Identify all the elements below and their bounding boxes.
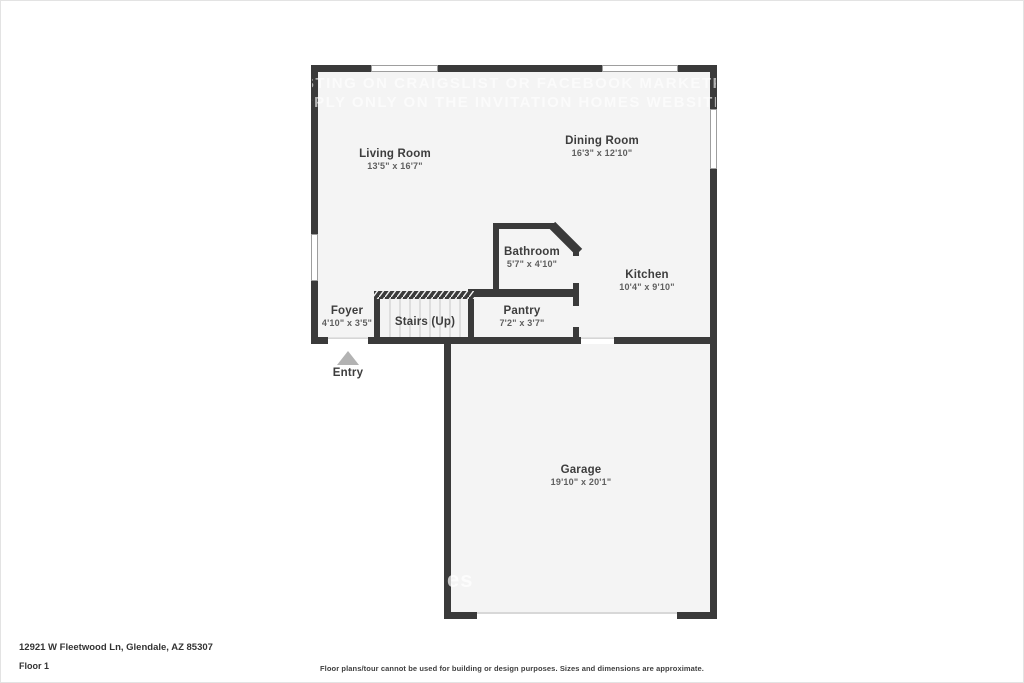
garage-house-threshold-line	[581, 338, 614, 339]
garage-floor	[447, 340, 714, 614]
window-top-left	[372, 66, 438, 72]
wall-pantry-top	[468, 289, 579, 297]
floorplan-page: STING ON CRAIGSLIST OR FACEBOOK MARKETP …	[0, 0, 1024, 683]
wall-house-left	[311, 65, 318, 344]
wall-garage-bottom-left	[444, 612, 477, 619]
wall-bathroom-left	[493, 223, 499, 297]
wall-garage-left	[444, 337, 451, 619]
window-left	[312, 235, 318, 281]
floorplan-drawing	[1, 1, 1024, 683]
entry-arrow-icon	[337, 351, 359, 365]
disclaimer-text: Floor plans/tour cannot be used for buil…	[1, 664, 1023, 673]
wall-garage-bottom-right	[677, 612, 717, 619]
garage-door-line	[477, 612, 677, 614]
window-right	[711, 110, 717, 169]
window-top-right	[603, 66, 678, 72]
wall-house-bottom	[311, 337, 717, 344]
wall-pantry-right-upper	[573, 297, 579, 306]
entry-threshold-line	[328, 338, 368, 339]
wall-bathroom-top	[493, 223, 555, 229]
stairs-railing-hatch	[374, 291, 474, 299]
property-address: 12921 W Fleetwood Ln, Glendale, AZ 85307	[19, 642, 213, 653]
wall-pantry-right-lower	[573, 327, 579, 344]
